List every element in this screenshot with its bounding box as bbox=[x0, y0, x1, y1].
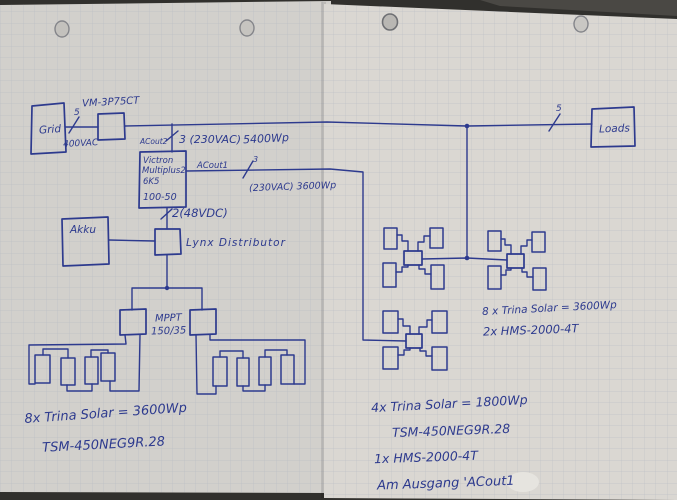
punch-hole bbox=[383, 14, 398, 30]
battery-label: Akku bbox=[69, 224, 96, 236]
grid-conductor-count: 5 bbox=[74, 108, 80, 118]
mppt-label-line2: 150/35 bbox=[151, 325, 187, 337]
distributor-label: Lynx Distributor bbox=[186, 237, 286, 249]
ac-out1-port-label: ACout1 bbox=[196, 161, 228, 171]
loads-label: Loads bbox=[599, 122, 631, 135]
grid-voltage-label: 400VAC bbox=[63, 138, 99, 150]
loads-conductor-count: 5 bbox=[556, 104, 562, 114]
grid-label: Grid bbox=[39, 123, 62, 137]
ac-out1-conductor-count: 3 bbox=[253, 155, 258, 164]
inverter-name-line4: 100-50 bbox=[143, 192, 177, 203]
punch-hole bbox=[240, 20, 254, 36]
inverter-name-line3: 6K5 bbox=[143, 177, 159, 187]
photo-of-hand-drawn-wiring-diagram: VM-3P75CT Grid 5 400VAC ACout2 3 (230VAC… bbox=[0, 0, 677, 500]
ac-in-power-label: 5400Wp bbox=[243, 131, 289, 146]
dc-link-label: 2(48VDC) bbox=[172, 206, 228, 220]
wire-battery-to-lynx bbox=[109, 240, 155, 241]
inverter-name-line2: Multiplus2 bbox=[142, 166, 186, 176]
punch-hole bbox=[55, 21, 69, 37]
diagram-canvas: VM-3P75CT Grid 5 400VAC ACout2 3 (230VAC… bbox=[0, 0, 677, 500]
punch-hole bbox=[574, 16, 588, 32]
inverter-name-line1: Victron bbox=[143, 156, 173, 166]
ac-in-spec-label: 3 (230VAC) bbox=[179, 133, 241, 146]
ac-in-port-label: ACout2 bbox=[139, 137, 168, 146]
mppt-label-line1: MPPT bbox=[155, 313, 183, 325]
